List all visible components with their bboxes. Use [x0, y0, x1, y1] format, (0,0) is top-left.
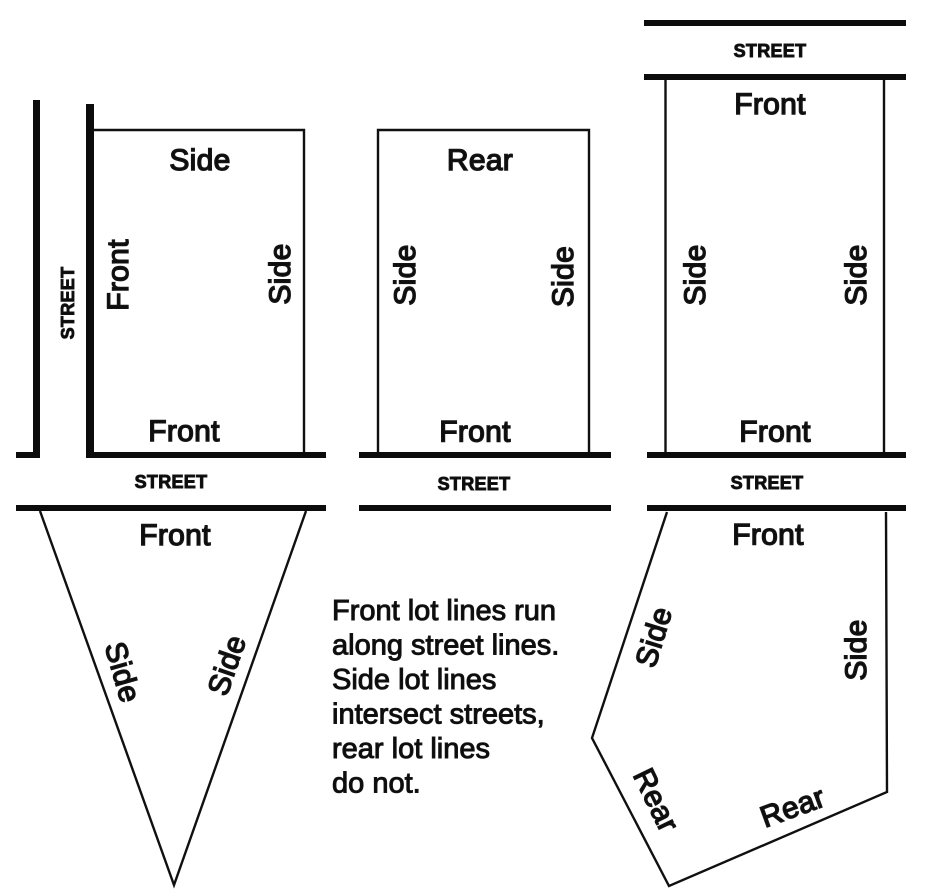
- svg-text:Side: Side: [169, 144, 230, 177]
- svg-text:Rear: Rear: [447, 144, 513, 177]
- svg-text:STREET: STREET: [734, 41, 807, 61]
- svg-text:Front: Front: [734, 88, 806, 121]
- svg-text:rear lot lines: rear lot lines: [332, 733, 490, 765]
- svg-text:Front: Front: [439, 416, 511, 449]
- svg-text:Front: Front: [139, 519, 211, 552]
- svg-text:Side: Side: [840, 244, 873, 305]
- svg-text:Side: Side: [547, 246, 580, 307]
- svg-text:Front: Front: [102, 239, 135, 311]
- svg-text:Side: Side: [264, 243, 297, 304]
- svg-text:Front: Front: [148, 415, 220, 448]
- svg-text:STREET: STREET: [58, 267, 78, 340]
- svg-text:Side lot lines: Side lot lines: [332, 664, 496, 696]
- svg-text:intersect streets,: intersect streets,: [332, 699, 545, 731]
- svg-text:Front: Front: [732, 519, 804, 552]
- svg-text:Side: Side: [840, 619, 873, 680]
- svg-text:Side: Side: [389, 244, 422, 305]
- svg-text:Side: Side: [679, 244, 712, 305]
- svg-text:STREET: STREET: [731, 473, 804, 493]
- svg-text:STREET: STREET: [135, 472, 208, 492]
- svg-text:along street lines.: along street lines.: [332, 630, 559, 662]
- svg-text:Front lot lines run: Front lot lines run: [332, 595, 556, 627]
- svg-text:do not.: do not.: [332, 768, 421, 800]
- svg-text:STREET: STREET: [438, 474, 511, 494]
- svg-text:Front: Front: [739, 416, 811, 449]
